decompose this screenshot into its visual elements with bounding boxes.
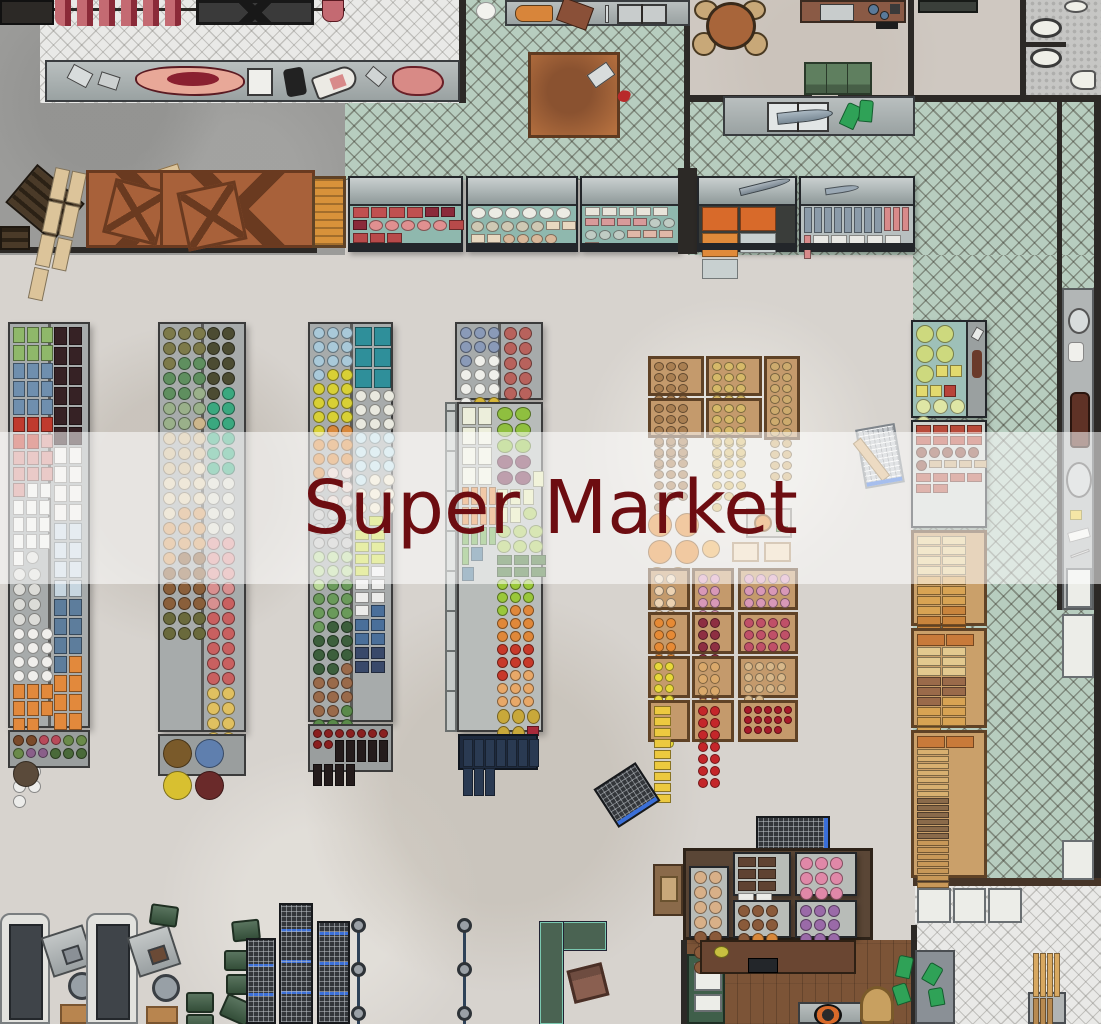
fruit-crate-red: [738, 612, 798, 654]
case-divider: [678, 168, 697, 254]
tall-fridge: [1062, 840, 1094, 880]
aisle4-cans-left: [457, 324, 506, 404]
kitchen-counter: [505, 0, 690, 26]
knife-icon: [605, 5, 609, 23]
butcher-counter: [45, 60, 460, 102]
plate: [476, 2, 496, 20]
cash-register: [147, 944, 169, 965]
cutting-board-orange: [515, 5, 553, 22]
bananas: [651, 703, 687, 739]
bread-shelf-3: [911, 730, 987, 878]
wall-bathroom-divider: [1022, 42, 1066, 47]
deli-case-meat: [348, 176, 463, 252]
cart-handle: [824, 818, 828, 852]
aisle2-end-display: [158, 734, 246, 776]
rail-post: [351, 1006, 366, 1021]
bathroom-sink: [1030, 48, 1062, 68]
case-base: [801, 243, 913, 250]
cart-stack: [317, 921, 350, 1024]
bakery-register: [748, 958, 778, 973]
fruit-crate-oranges: [648, 612, 690, 654]
bagging-stand-2: [152, 974, 180, 1002]
meat-cut: [392, 66, 444, 96]
bulk-baskets: [160, 736, 250, 780]
wood-crate-rotated: [176, 180, 247, 251]
black-gloves: [283, 66, 308, 97]
case-base: [468, 243, 576, 250]
case-top: [801, 178, 913, 206]
rail-post: [457, 918, 472, 933]
case-top: [582, 178, 678, 206]
case-top: [468, 178, 576, 206]
breakroom-table: [706, 2, 756, 50]
cheese-paddle: [972, 350, 982, 378]
bread-loaves: [914, 631, 984, 725]
bakery-counter: [700, 940, 856, 974]
potatoes: [709, 401, 759, 435]
pastry-tray-cupcakes: [795, 852, 857, 896]
burner: [880, 11, 889, 20]
rail-post: [457, 962, 472, 977]
red-apples: [695, 703, 731, 739]
red-fruit: [741, 615, 795, 651]
freezer-door: [694, 994, 722, 1012]
case-base: [350, 243, 461, 250]
cart-stack: [246, 938, 276, 1024]
pastry-tray-cookies: [689, 866, 729, 938]
toilet: [1070, 70, 1096, 90]
cleaver-icon: [97, 71, 120, 90]
cleaver-icon: [365, 66, 387, 88]
fruit-crate-bananas: [648, 700, 690, 742]
kitchenette-desk: [800, 0, 906, 23]
wall-kitchen-breakroom: [684, 0, 690, 178]
rail-post: [351, 918, 366, 933]
rail-post: [457, 1006, 472, 1021]
cash-register: [61, 944, 83, 965]
meat-marbling: [167, 72, 219, 86]
pastry-tray-eclairs: [733, 852, 791, 896]
fish-case-ice: [799, 176, 915, 252]
aisle3-wine-display: [308, 724, 393, 772]
rail-post: [351, 962, 366, 977]
orange-crate-stack: [312, 176, 346, 248]
beets: [695, 615, 731, 651]
pastry-side-shelf: [653, 864, 683, 916]
green-gloves: [928, 987, 946, 1007]
baguette-rack-vertical: [1030, 950, 1066, 996]
purple-pastries: [797, 902, 855, 936]
knife-icon: [971, 327, 985, 342]
potato-crate-tan: [764, 356, 800, 440]
donuts: [735, 902, 789, 936]
bread-shelf-2: [911, 628, 987, 728]
cherries: [741, 703, 795, 739]
sofa: [804, 62, 872, 95]
office-table: [918, 0, 978, 13]
potatoes: [767, 359, 797, 437]
fruit-crate-tan: [738, 656, 798, 698]
cleaver-icon: [67, 64, 94, 88]
mixer: [1068, 308, 1090, 334]
bakery-stove: [798, 1002, 862, 1024]
tall-fridge: [1062, 614, 1094, 678]
bakery-chair: [860, 986, 894, 1024]
sink-divider: [641, 4, 643, 24]
tan-fruit: [741, 659, 795, 695]
cart-stack: [279, 903, 313, 1024]
map-title: Super Market: [303, 471, 798, 545]
storage-cabinets-top-left: [0, 0, 54, 25]
aisle-shelf-4-cans: [455, 322, 543, 400]
lemons: [651, 659, 687, 695]
potato-crate: [648, 356, 704, 396]
checkout-lane-2: [86, 913, 138, 1024]
conveyor-belt: [9, 924, 43, 1020]
deli-case-poultry: [466, 176, 578, 252]
fruit-crate-lemons: [648, 656, 690, 698]
wall-butcher-right: [459, 0, 466, 103]
potatoes: [651, 401, 701, 435]
wall-breakroom-internal: [908, 0, 914, 95]
appliance-small: [890, 4, 900, 14]
fruit-crate-beets: [692, 612, 734, 654]
aisle1-end-display: [8, 730, 90, 768]
floor-mats: [458, 734, 538, 770]
wine-bottles: [310, 726, 397, 776]
cheese-case: [911, 320, 987, 418]
shopping-basket: [186, 992, 214, 1013]
conveyor-belt: [96, 924, 130, 1020]
apricots: [695, 659, 731, 695]
dark-crates-top: [196, 0, 314, 25]
case-base: [699, 243, 795, 250]
fruit-crate-cherries: [738, 700, 798, 742]
potatoes: [709, 359, 759, 393]
cookies: [691, 868, 727, 936]
green-gloves: [921, 962, 944, 987]
fish-prep-counter: [723, 96, 915, 136]
cooking-pot: [814, 1004, 842, 1024]
wall-bathroom-left: [1020, 0, 1026, 100]
baguette-rack: [914, 733, 984, 875]
shopping-basket: [186, 1014, 214, 1024]
green-gloves: [858, 99, 874, 122]
cleaver-icon: [587, 62, 616, 89]
shopping-basket: [149, 903, 180, 928]
oven-cabinet: [988, 888, 1022, 923]
mat-rolls: [460, 736, 542, 774]
service-counter-side: [540, 922, 563, 1024]
white-tray: [247, 68, 273, 96]
lemon-item: [714, 946, 729, 958]
potatoes: [651, 359, 701, 393]
paper-roll: [1068, 342, 1084, 362]
butcher-block-table: [528, 52, 620, 138]
cheese-case-side: [966, 322, 985, 416]
oven-cabinet: [917, 888, 951, 923]
title-banner: Super Market: [0, 432, 1101, 584]
cupcakes: [797, 854, 855, 894]
supermarket-map: Super Market: [0, 0, 1101, 1024]
pastry-tray-donuts: [733, 900, 791, 938]
fish-case-roe: [697, 176, 797, 252]
paper-bags: [146, 1006, 178, 1024]
aisle4-cans-right: [501, 324, 549, 404]
prep-counter-gray: [915, 950, 955, 1024]
hanging-meat-row: [55, 0, 185, 26]
small-pallet: [0, 226, 30, 250]
urinal: [1064, 0, 1088, 13]
oven-cabinet: [953, 888, 986, 923]
bathroom-sink: [1030, 18, 1062, 38]
checkout-lane-1: [0, 913, 50, 1024]
fruit-crate-apples: [692, 700, 734, 742]
printer: [876, 22, 898, 29]
potato-crate-yellow: [706, 356, 762, 396]
hanging-meat-piece: [322, 0, 344, 22]
flour-box: [660, 876, 678, 902]
oranges: [651, 615, 687, 651]
case-base: [582, 243, 678, 250]
kitchenette-sink: [820, 4, 854, 21]
cheese-display: [913, 322, 971, 422]
fruit-crate-apricots: [692, 656, 734, 698]
pastry-tray-purple: [795, 900, 857, 938]
deli-case-seafood: [580, 176, 680, 252]
eclairs: [735, 854, 789, 894]
flower-basket-display: [10, 732, 94, 772]
burner: [868, 4, 879, 15]
case-top: [350, 178, 461, 206]
